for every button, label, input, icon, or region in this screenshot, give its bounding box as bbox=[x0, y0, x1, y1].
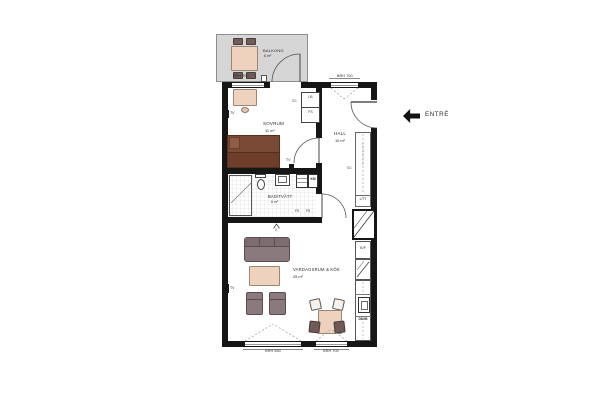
room-area-hall: 10 m² bbox=[335, 139, 345, 143]
floor-plan: BALKONG 6 m² BRH 700 BRH 700 BRH 550 BRH… bbox=[0, 0, 600, 400]
wall-segment bbox=[371, 82, 377, 100]
room-area-vardagsrum: 25 m² bbox=[293, 275, 303, 279]
laundry-shelf bbox=[297, 178, 307, 179]
laundry-cabinet bbox=[296, 174, 308, 188]
dishwasher-label: DM/M bbox=[355, 318, 371, 321]
entry-arrow-icon bbox=[403, 109, 420, 123]
closet-label-sg: SG bbox=[292, 100, 297, 103]
dining-chair bbox=[333, 320, 345, 333]
balcony-chair bbox=[246, 38, 256, 45]
wall-segment bbox=[264, 82, 270, 88]
tv-outlet bbox=[226, 284, 229, 293]
wall-segment bbox=[301, 341, 316, 347]
bedroom-door-arc bbox=[294, 138, 319, 163]
dresser bbox=[233, 89, 257, 106]
tv-label: TV bbox=[230, 287, 234, 291]
bed-blanket bbox=[228, 152, 279, 167]
tv-outlet bbox=[289, 164, 294, 168]
window-label-hall: BRH 700 bbox=[337, 75, 353, 79]
shower bbox=[229, 175, 252, 216]
closet-label-lb: LB bbox=[302, 96, 319, 100]
room-label-hall: HALL bbox=[334, 132, 346, 137]
stool bbox=[241, 107, 249, 113]
room-label-balkong: BALKONG bbox=[263, 49, 284, 53]
sofa-cushion-divider bbox=[274, 238, 275, 247]
window-living-right bbox=[316, 341, 347, 347]
window-hall bbox=[331, 82, 358, 88]
wall-segment bbox=[222, 217, 322, 223]
kitchen-sink-basin bbox=[361, 301, 368, 310]
window-direction-lines bbox=[245, 324, 301, 341]
armchair bbox=[246, 292, 263, 315]
vent-marker bbox=[261, 75, 267, 82]
counter-divider bbox=[355, 294, 371, 295]
sofa-cushion-divider bbox=[259, 238, 260, 247]
toilet-bowl bbox=[257, 179, 265, 190]
hall-sg-label: SG bbox=[347, 167, 352, 170]
tv-label: TV bbox=[230, 112, 234, 116]
bath-fs-label: FS bbox=[306, 210, 310, 213]
bathroom-door-arc bbox=[322, 194, 346, 218]
room-area-bad: 6 m² bbox=[271, 201, 278, 205]
bathroom-sink-basin bbox=[278, 176, 287, 183]
wardrobe-shelf-label: HATTHYLLA bbox=[361, 143, 364, 187]
laundry-shelf bbox=[297, 182, 307, 183]
closet-divider bbox=[301, 107, 320, 108]
armchair-seat-line bbox=[270, 299, 285, 300]
sofa-back bbox=[245, 238, 289, 247]
laundry-label: KM bbox=[308, 178, 318, 181]
toilet-tank bbox=[255, 174, 266, 178]
bath-fs-label: FS bbox=[295, 210, 299, 213]
dining-chair bbox=[308, 320, 320, 333]
shaft bbox=[352, 209, 376, 240]
bed-pillow bbox=[229, 137, 240, 149]
fridge-freezer-label: K/F bbox=[355, 247, 371, 251]
armchair bbox=[269, 292, 286, 315]
window-living-left bbox=[245, 341, 301, 347]
entry-door-arc bbox=[351, 102, 377, 128]
coffee-table bbox=[249, 266, 280, 286]
section-marker-label: 2 bbox=[275, 229, 277, 233]
room-area-sovrum: 11 m² bbox=[265, 129, 275, 133]
entry-label: ENTRÉ bbox=[425, 112, 449, 118]
balcony-chair bbox=[233, 38, 243, 45]
window-label-living-left: BRH 550 bbox=[261, 350, 285, 354]
armchair-seat-line bbox=[247, 299, 262, 300]
tv-outlet bbox=[226, 110, 229, 118]
window-direction-lines bbox=[331, 88, 358, 99]
window-label-balcony: BRH 700 bbox=[233, 75, 249, 79]
tv-label: TV bbox=[286, 159, 290, 163]
wardrobe-bottom-label: L/TT bbox=[355, 198, 371, 201]
closet-label-fs: FS bbox=[302, 111, 319, 115]
balcony-table bbox=[231, 46, 258, 71]
room-area-balkong: 6 m² bbox=[264, 55, 271, 59]
wardrobe-divider bbox=[355, 195, 371, 196]
window-bedroom bbox=[232, 82, 264, 88]
room-label-vardagsrum: VARDAGSRUM & KÖK bbox=[293, 268, 340, 272]
room-label-sovrum: SOVRUM bbox=[263, 122, 284, 127]
window-label-living-right: BRH 700 bbox=[319, 350, 343, 354]
stove bbox=[355, 259, 371, 280]
room-label-bad: BAD/TVÄTT bbox=[268, 195, 292, 199]
